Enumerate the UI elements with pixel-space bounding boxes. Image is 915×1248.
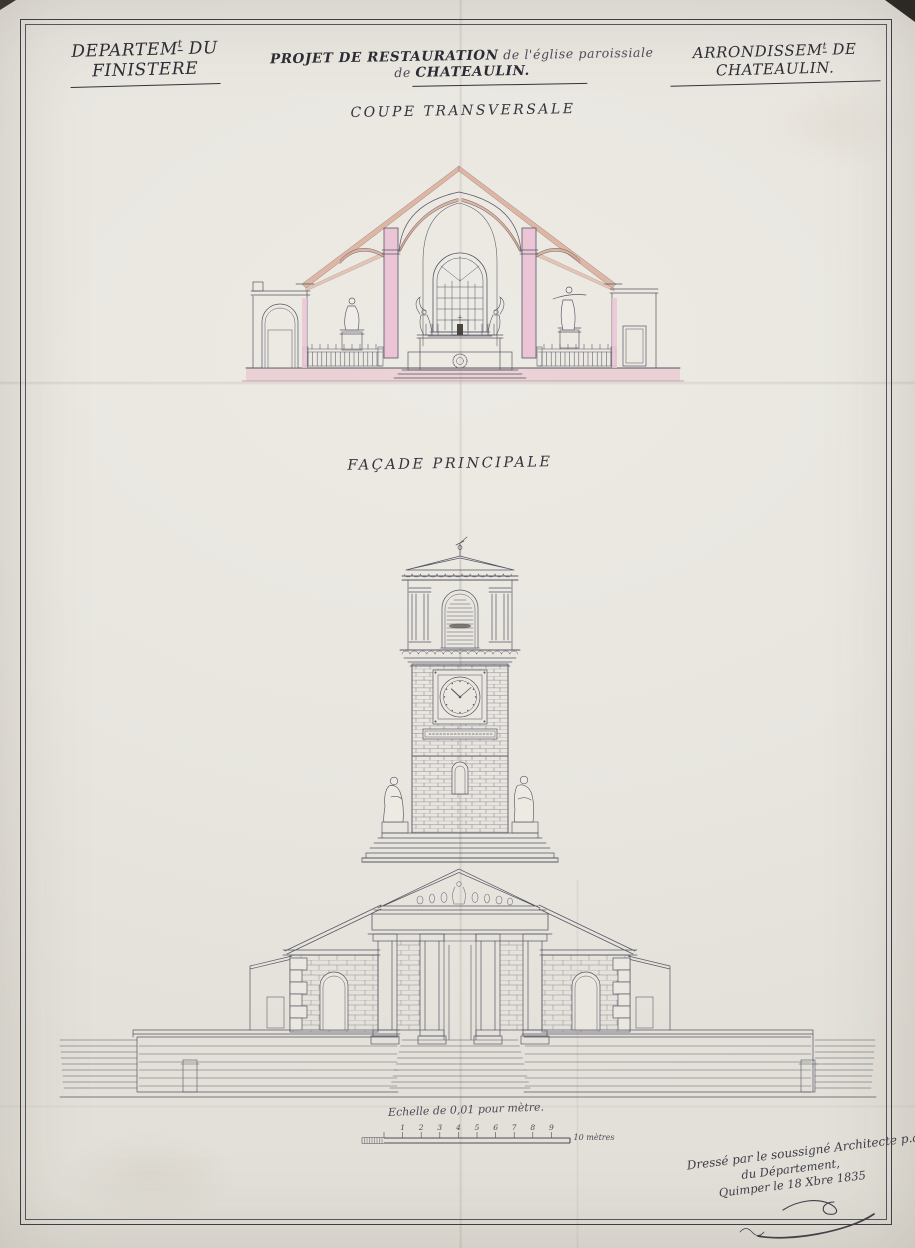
coupe-transversale-drawing xyxy=(240,158,690,388)
scale-bar: 1 2 3 4 5 6 7 8 9 10 mètres xyxy=(340,1100,670,1155)
scale-number: 4 xyxy=(455,1123,461,1132)
scale-number: 8 xyxy=(530,1123,535,1132)
scale-number: 1 xyxy=(400,1123,405,1132)
scale-number: 3 xyxy=(437,1123,442,1132)
photo-corner-dark xyxy=(885,0,915,22)
scale-number: 6 xyxy=(493,1123,498,1132)
scale-number: 9 xyxy=(549,1123,554,1132)
scale-number: 7 xyxy=(512,1123,517,1132)
scale-number: 2 xyxy=(418,1123,424,1132)
photo-corner-dark xyxy=(0,0,16,10)
title-project-place: CHATEAULIN. xyxy=(415,63,530,81)
signature-flourish xyxy=(688,1192,888,1244)
facade-principale-drawing xyxy=(55,528,870,1113)
drawing-sheet: DEPARTEMt DU FINISTERE PROJET DE RESTAUR… xyxy=(0,0,915,1248)
scale-number: 5 xyxy=(475,1123,480,1132)
title-department: DEPARTEMt DU FINISTERE xyxy=(24,37,265,89)
title-department-text: DEPARTEM xyxy=(71,39,178,62)
scale-end-label: 10 mètres xyxy=(574,1133,615,1142)
title-arrondissement: ARRONDISSEMt DE CHATEAULIN. xyxy=(654,39,895,87)
title-project: PROJET DE RESTAURATION de l'église paroi… xyxy=(262,45,663,90)
